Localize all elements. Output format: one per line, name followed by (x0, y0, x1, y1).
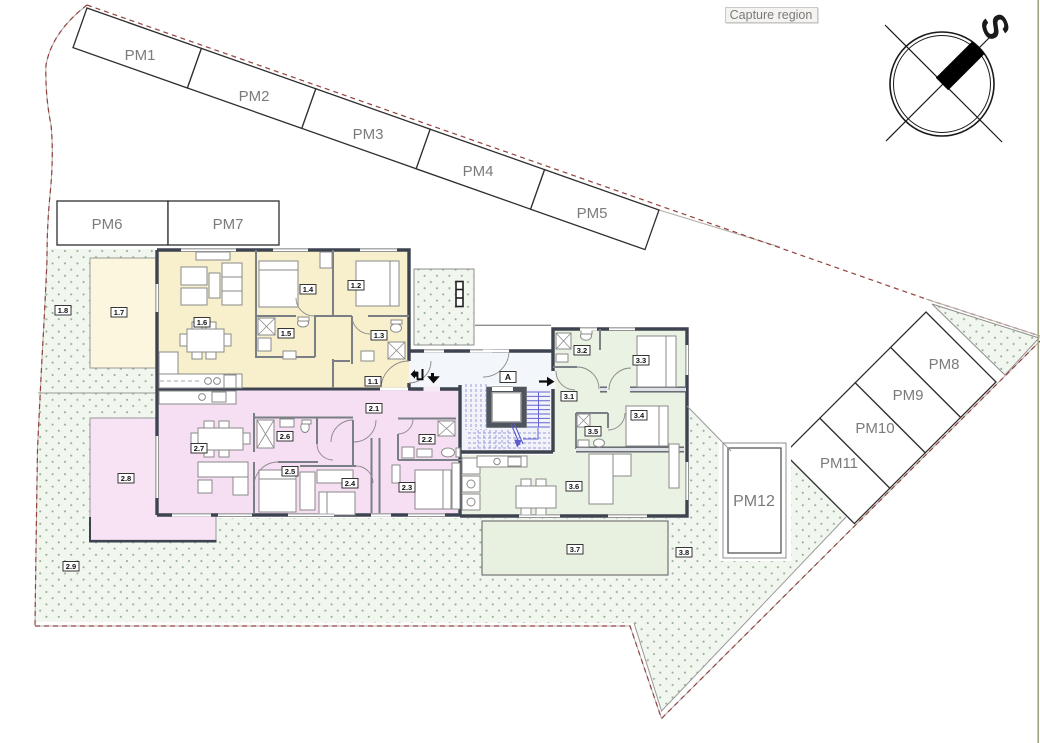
svg-text:Capture region: Capture region (730, 8, 813, 22)
svg-text:PM3: PM3 (353, 126, 384, 143)
svg-text:1.5: 1.5 (281, 329, 291, 338)
svg-text:PM10: PM10 (855, 420, 894, 437)
svg-text:3.2: 3.2 (577, 346, 587, 355)
svg-text:1.1: 1.1 (368, 377, 378, 386)
svg-text:3.6: 3.6 (569, 482, 579, 491)
svg-text:PM6: PM6 (92, 216, 123, 233)
svg-text:PM1: PM1 (125, 47, 156, 64)
svg-text:2.9: 2.9 (66, 562, 76, 571)
svg-text:3.4: 3.4 (634, 411, 645, 420)
svg-text:2.8: 2.8 (121, 474, 131, 483)
svg-text:PM11: PM11 (820, 455, 858, 472)
svg-text:1.3: 1.3 (374, 331, 384, 340)
svg-text:2.1: 2.1 (369, 404, 379, 413)
svg-text:2.3: 2.3 (402, 483, 412, 492)
svg-text:2.7: 2.7 (194, 444, 204, 453)
svg-text:1.2: 1.2 (351, 281, 361, 290)
svg-text:1.8: 1.8 (58, 306, 68, 315)
svg-text:2.4: 2.4 (345, 479, 356, 488)
svg-text:PM7: PM7 (213, 216, 244, 233)
svg-text:3.3: 3.3 (636, 356, 646, 365)
svg-text:PM9: PM9 (893, 387, 924, 404)
svg-text:PM5: PM5 (577, 205, 608, 222)
svg-text:PM8: PM8 (929, 356, 960, 373)
svg-text:2.2: 2.2 (422, 435, 432, 444)
svg-text:PM2: PM2 (239, 88, 270, 105)
svg-text:3.7: 3.7 (570, 545, 580, 554)
svg-text:3.5: 3.5 (588, 427, 598, 436)
svg-text:3.1: 3.1 (564, 392, 574, 401)
svg-text:2.5: 2.5 (285, 467, 295, 476)
svg-text:PM4: PM4 (463, 163, 494, 180)
svg-text:1.7: 1.7 (114, 308, 124, 317)
svg-text:2.6: 2.6 (280, 432, 290, 441)
svg-text:1.4: 1.4 (303, 285, 314, 294)
svg-text:3.8: 3.8 (679, 548, 689, 557)
svg-text:A: A (505, 372, 511, 382)
svg-text:PM12: PM12 (733, 493, 775, 510)
svg-text:1.6: 1.6 (197, 318, 207, 327)
